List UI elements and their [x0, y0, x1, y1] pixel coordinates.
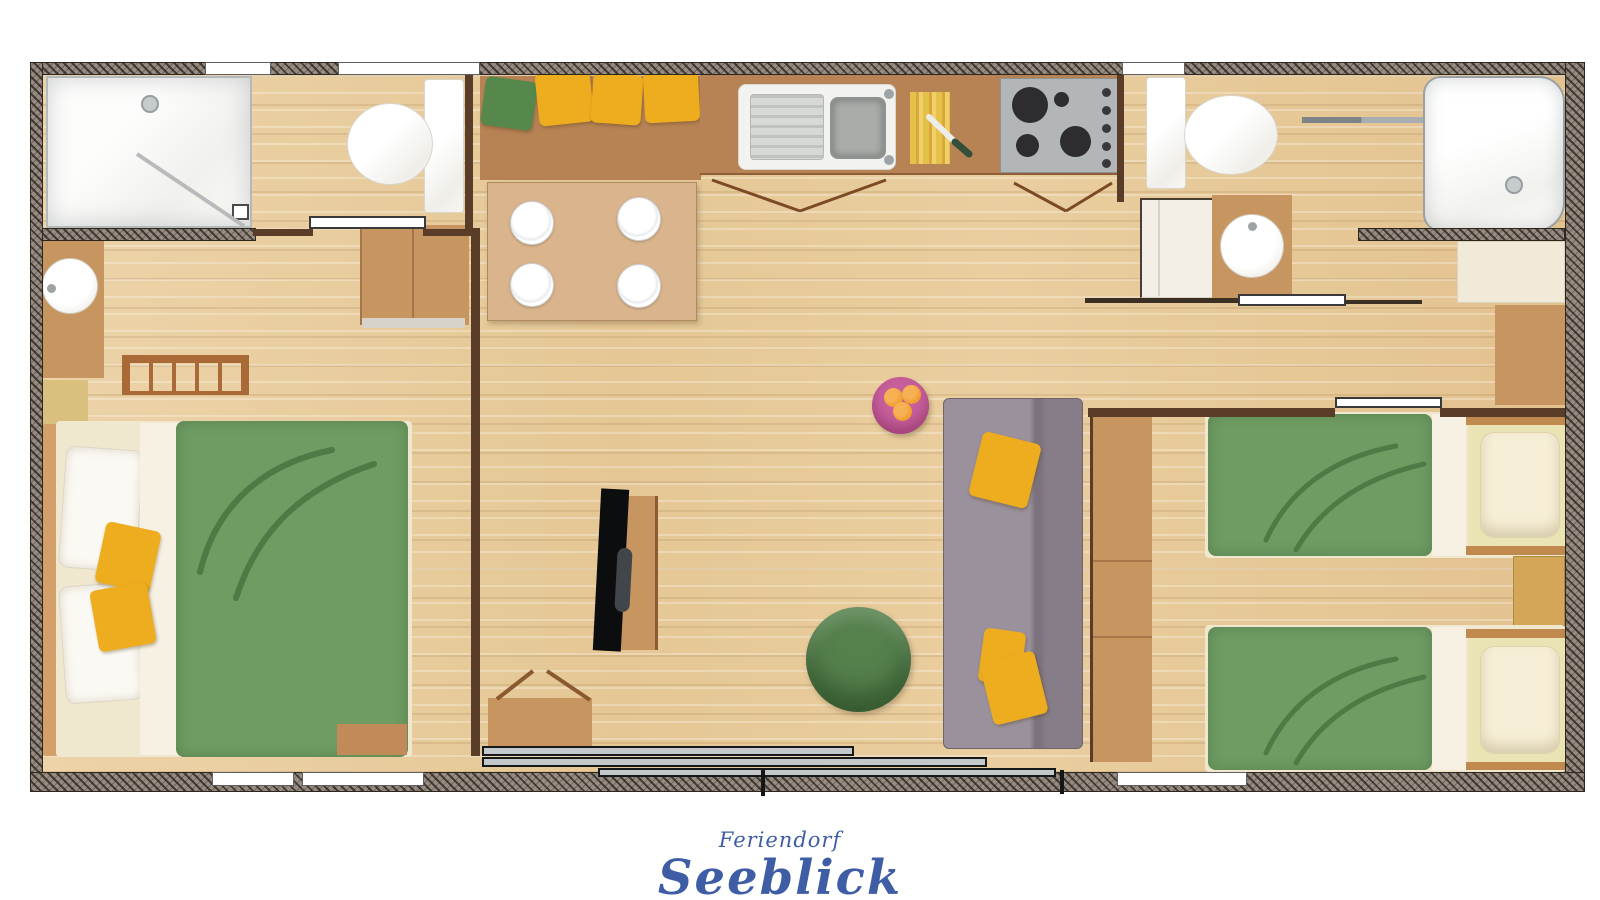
duvet-crease — [200, 450, 332, 572]
floor-plan-page: Feriendorf Seeblick — [0, 0, 1600, 900]
duvet-crease — [1266, 659, 1396, 753]
branding: Feriendorf Seeblick — [620, 828, 940, 900]
knife-handle-icon — [955, 142, 969, 154]
plan-line-details — [0, 0, 1600, 900]
cabinet-door-swing-mark — [712, 180, 886, 211]
cabinet-door-swing-mark — [1014, 183, 1112, 211]
cabinet-door-swing-mark — [497, 671, 590, 700]
duvet-crease — [1266, 446, 1396, 540]
branding-line2: Seeblick — [620, 850, 940, 900]
branding-line1: Feriendorf — [620, 828, 940, 852]
